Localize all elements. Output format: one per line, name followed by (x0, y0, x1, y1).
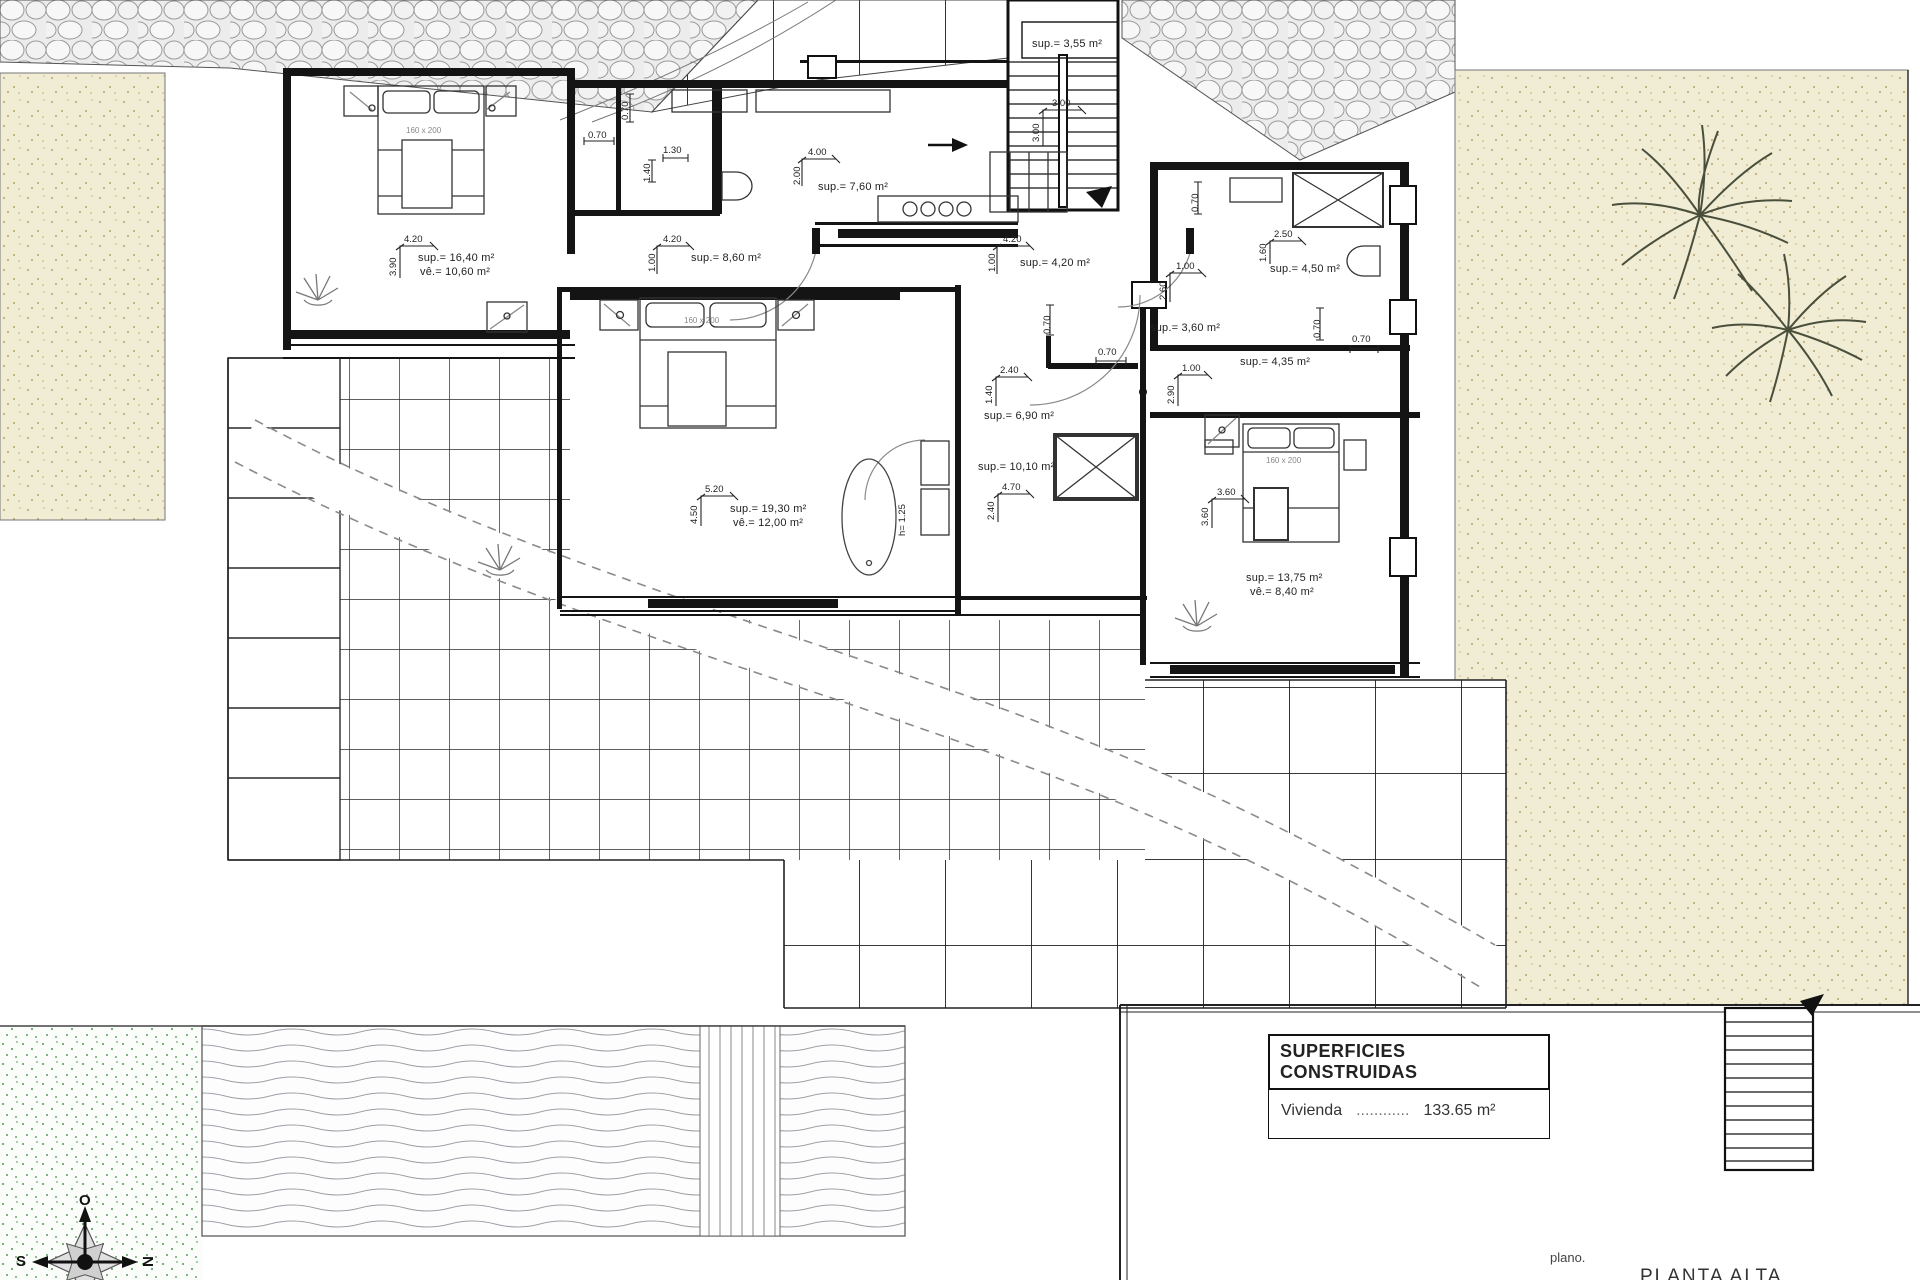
areas-table-row: Vivienda ............ 133.65 m² (1268, 1090, 1550, 1139)
floor-plan-canvas: 4.20 3.90 sup.= 16,40 m² vê.= 10,60 m² 1… (0, 0, 1920, 1280)
dim-bath-center-h: 1.40 (984, 386, 995, 405)
exterior-stairs (1725, 994, 1824, 1170)
shelf (921, 441, 949, 485)
dim-stairs-h: 3.00 (1031, 124, 1042, 143)
cabinet (1230, 178, 1282, 202)
room-label-bath-small: sup.= 3,60 m² (1150, 322, 1220, 334)
dim-bath-small-w: 1.00 (1176, 261, 1195, 272)
dim-stairs-w: 3.00 (1052, 98, 1071, 109)
dim-dressing-w: 1.00 (1182, 363, 1201, 374)
closet-hanger (1205, 415, 1239, 447)
dim-140: 1.40 (642, 164, 653, 183)
bed-size-label: 160 x 200 (684, 316, 719, 325)
room-label-dressing: sup.= 4,35 m² (1240, 356, 1310, 368)
compass-letter-right: N (139, 1256, 156, 1267)
areas-table-header: SUPERFICIES CONSTRUIDAS (1268, 1034, 1550, 1090)
dim-bath-tr-w: 2.50 (1274, 229, 1293, 240)
bed-size-label: 160 x 200 (406, 126, 441, 135)
room-label-bath-center: sup.= 6,90 m² (984, 410, 1054, 422)
dim-utility-h: 2.40 (986, 502, 997, 521)
x-closet (1293, 173, 1383, 227)
room-label-bedroom2-sup: sup.= 19,30 m² (730, 503, 806, 515)
room-label-stairs: sup.= 3,55 m² (1032, 38, 1102, 50)
nightstand (600, 300, 638, 330)
dim-corridor-w: 4.20 (1003, 234, 1022, 245)
dim-utility-w: 4.70 (1002, 482, 1021, 493)
dim-070-f: 0.70 (1352, 334, 1371, 345)
shelf (921, 489, 949, 535)
dim-bath-center-w: 2.40 (1000, 365, 1019, 376)
areas-table: SUPERFICIES CONSTRUIDAS Vivienda .......… (1268, 1034, 1550, 1139)
entry-arrow (928, 138, 968, 152)
areas-table-row-value: 133.65 m² (1423, 1102, 1495, 1120)
areas-table-row-label: Vivienda (1281, 1102, 1342, 1120)
dim-bedroom2-w: 5.20 (705, 484, 724, 495)
toilet (1347, 246, 1380, 276)
room-label-bedroom3-sup: sup.= 13,75 m² (1246, 572, 1322, 584)
dim-bedroom3-w: 3.60 (1217, 487, 1236, 498)
cobblestone-area-top-right (1122, 0, 1455, 160)
dim-bedroom3-h: 3.60 (1200, 508, 1211, 527)
dim-bedroom2-h: 4.50 (689, 506, 700, 525)
dim-bedroom1-w: 4.20 (404, 234, 423, 245)
room-label-bath-tr: sup.= 4,50 m² (1270, 263, 1340, 275)
dim-130: 1.30 (663, 145, 682, 156)
dim-070-c: 0.70 (1098, 347, 1117, 358)
dim-hall-w: 4.20 (663, 234, 682, 245)
titleblock-field-label: plano. (1550, 1250, 1585, 1265)
tub-height-label: h= 1.25 (897, 504, 908, 536)
dim-corridor-h: 1.00 (987, 254, 998, 273)
room-label-bedroom1-sup: sup.= 16,40 m² (418, 252, 494, 264)
bed-1 (378, 86, 484, 214)
dim-dressing-h: 2.90 (1166, 386, 1177, 405)
room-label-bedroom2-util: vê.= 12,00 m² (733, 517, 803, 529)
titleblock-plan-name: PLANTA ALTA (1640, 1266, 1782, 1280)
dim-070-d: 0.70 (1312, 320, 1323, 339)
x-shower (1055, 435, 1137, 499)
areas-table-row-dots: ............ (1356, 1102, 1409, 1120)
bed-size-label: 160 x 200 (1266, 456, 1301, 465)
cooktop (878, 196, 1018, 222)
dim-bath-small-h: 2.60 (1158, 282, 1169, 301)
room-label-corridor: sup.= 4,20 m² (1020, 257, 1090, 269)
exterior-steps (228, 358, 340, 860)
room-label-hall: sup.= 8,60 m² (691, 252, 761, 264)
dim-kitchen-w: 4.00 (808, 147, 827, 158)
room-label-kitchen: sup.= 7,60 m² (818, 181, 888, 193)
dim-070-g: 0.70 (1042, 316, 1053, 335)
closet-hanger (487, 302, 527, 332)
terrace-tiles (228, 358, 1506, 1008)
sand-garden-left (0, 73, 165, 520)
plant-icon (296, 274, 338, 305)
basin (722, 172, 752, 200)
room-label-bedroom1-util: vê.= 10,60 m² (420, 266, 490, 278)
room-label-bedroom3-util: vê.= 8,40 m² (1250, 586, 1314, 598)
dim-070-a: 0.70 (588, 130, 607, 141)
dim-kitchen-h: 2.00 (792, 167, 803, 186)
compass-letter-top: O (79, 1192, 91, 1209)
bed-3 (1243, 424, 1339, 542)
dim-hall-h: 1.00 (647, 254, 658, 273)
pool-area (0, 1026, 905, 1280)
wardrobe (756, 90, 890, 112)
plant-icon (1175, 600, 1217, 631)
dim-070-e: 0.70 (1190, 194, 1201, 213)
room-label-utility: sup.= 10,10 m² (978, 461, 1054, 473)
dim-bath-tr-h: 1.60 (1258, 244, 1269, 263)
dim-070-b: 0.70 (620, 102, 631, 121)
dim-bedroom1-h: 3.90 (388, 258, 399, 277)
floor-plan-drawing (0, 0, 1920, 1280)
compass-letter-left: S (16, 1253, 26, 1270)
nightstand (1344, 440, 1366, 470)
